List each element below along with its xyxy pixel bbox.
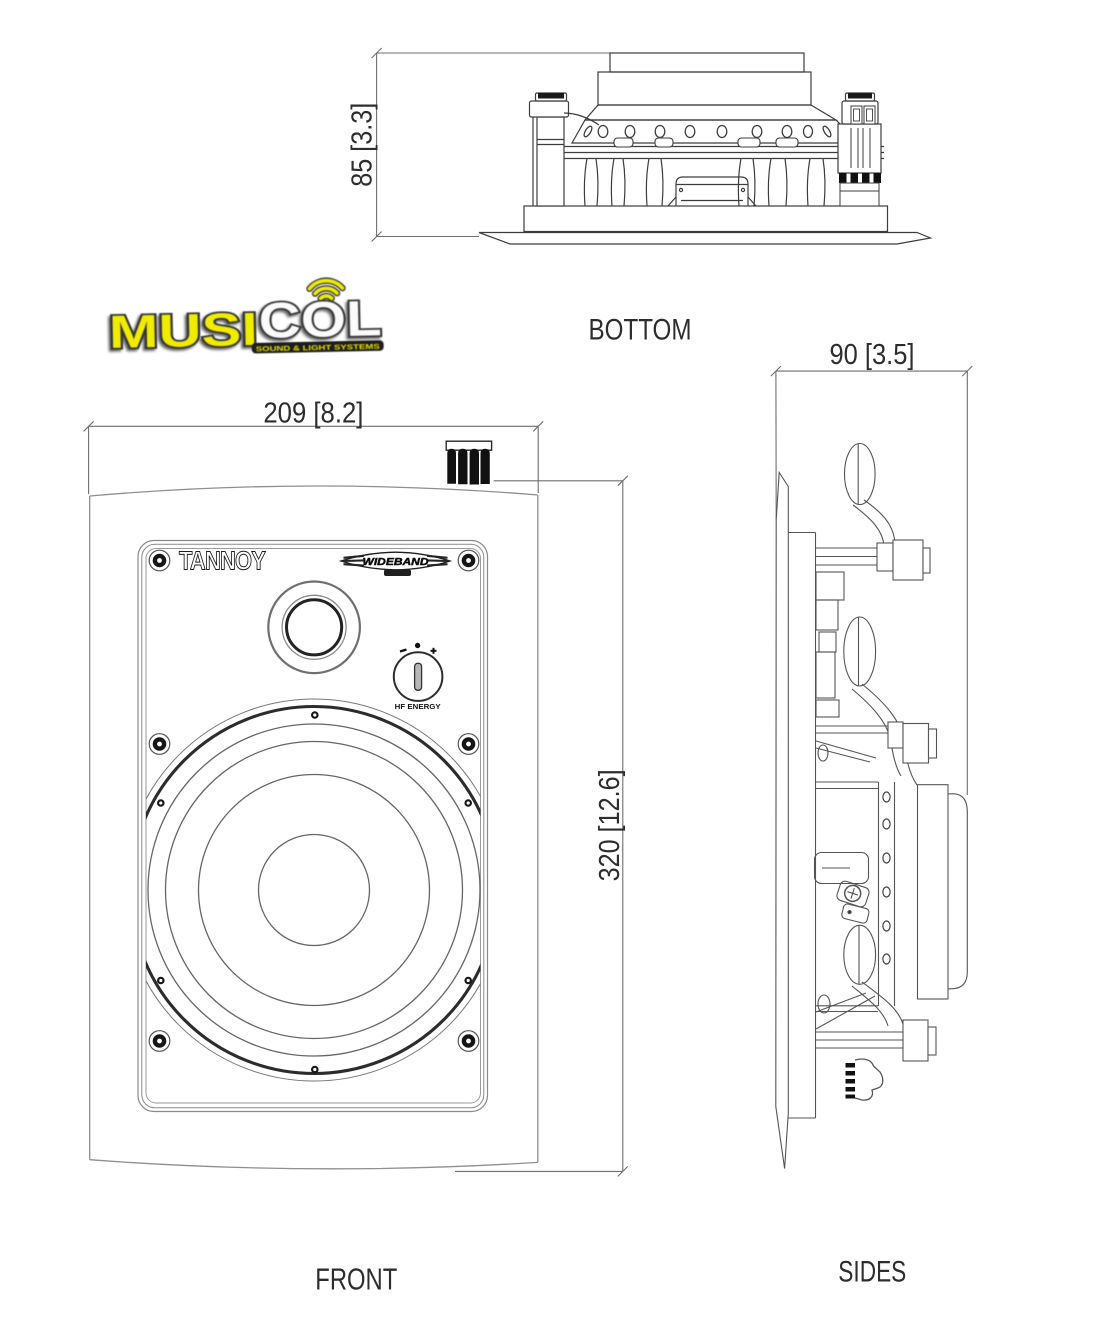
svg-text:WIDEBAND: WIDEBAND <box>363 556 429 568</box>
svg-text:90 [3.5]: 90 [3.5] <box>830 339 915 371</box>
svg-text:BOTTOM: BOTTOM <box>589 314 692 347</box>
svg-text:COL: COL <box>258 290 382 349</box>
svg-text:HF ENERGY: HF ENERGY <box>395 704 441 711</box>
svg-text:FRONT: FRONT <box>315 1262 397 1297</box>
svg-text:MUSI: MUSI <box>108 303 258 358</box>
svg-text:320 [12.6]: 320 [12.6] <box>594 769 626 881</box>
svg-text:209 [8.2]: 209 [8.2] <box>263 398 363 430</box>
svg-text:TANNOY: TANNOY <box>179 546 266 576</box>
svg-text:85 [3.3]: 85 [3.3] <box>347 103 379 187</box>
svg-text:SIDES: SIDES <box>838 1255 906 1288</box>
